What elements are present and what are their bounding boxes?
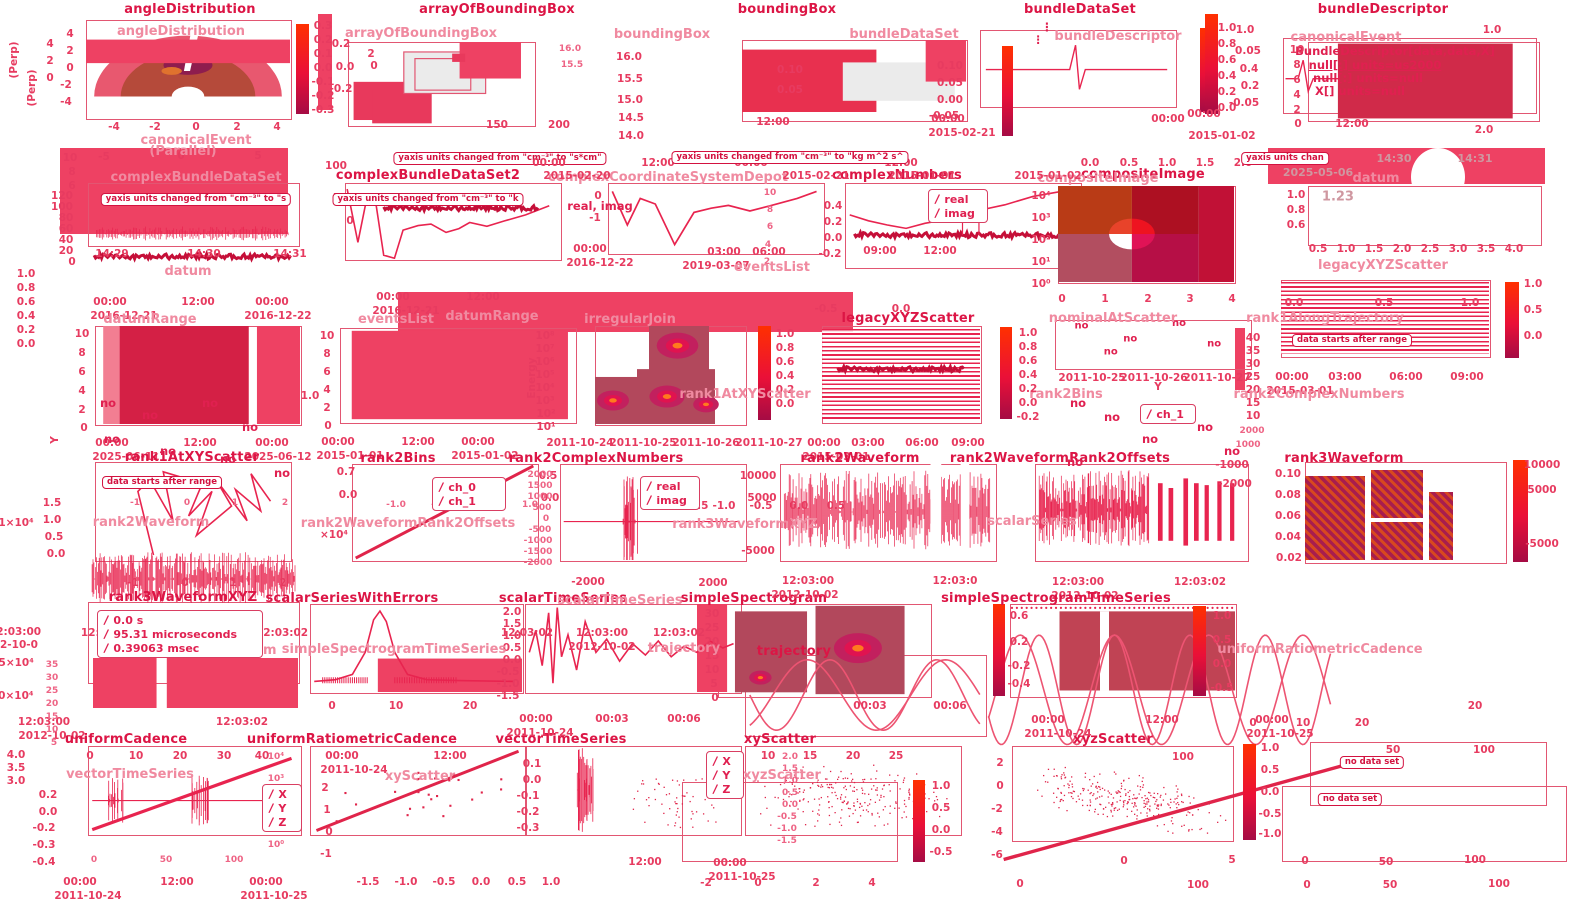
uniformRatiometricCadence-tick: 0.0: [523, 774, 542, 786]
uniformRatiometricCadence-tick: 00:00: [325, 750, 358, 762]
stray-label: no: [220, 452, 236, 466]
uniformRatiometricCadence-title: uniformRatiometricCadence: [247, 732, 457, 747]
datumRange-tick: 6: [78, 366, 85, 378]
stray-label: 16.0: [559, 44, 581, 54]
xyzScatter-colorbar-tick: 0.0: [1261, 786, 1280, 798]
stray-label: (Parallel): [149, 144, 216, 159]
complexNumbers-tick: 0.2: [824, 216, 843, 228]
legacyXYZScatter-tick: 06:00: [905, 437, 938, 449]
bundleDescriptor-tick: -0.05: [1229, 97, 1259, 109]
trajectory-title: trajectory: [757, 644, 831, 659]
uniformCadence-tick: 10⁰: [268, 840, 284, 850]
legend-item-label: Y: [722, 769, 730, 782]
empty-panel-2-tick: 100: [1488, 878, 1510, 890]
stray-label: no: [160, 444, 176, 458]
xyScatter-tick: -1.5: [777, 836, 797, 846]
irregularJoin-tick: 10⁴: [535, 382, 554, 394]
stray-colorbar: [1193, 606, 1206, 696]
complexBundleDataSet-tick: 0.2: [17, 324, 36, 336]
irregularJoin-colorbar-tick: 0.6: [776, 356, 795, 368]
irregularJoin-tick: 10³: [535, 395, 554, 407]
stray-label: 2000: [527, 470, 552, 480]
complexCoordinateSystemDepot-tick: 00:00: [573, 243, 606, 255]
legend-line-swatch-icon: ∕: [268, 801, 274, 815]
stray-label: (Perp): [26, 69, 38, 106]
compositeImage-tick: 4: [1228, 293, 1235, 305]
rank1AtXYScatter-tick: -1: [130, 498, 140, 508]
stray-label: 2015-02-21: [782, 170, 849, 182]
boundingBox-tick: 15.5: [617, 73, 643, 85]
rank1AlongTrajectory-colorbar-tick: 0.5: [1524, 304, 1543, 316]
scalarTimeSeries-tick: -1.5: [497, 690, 520, 702]
compositeImage-tick: 0.5: [1120, 157, 1139, 169]
vectorTimeSeries-tick: 2: [812, 877, 819, 889]
trajectory-inner-title: trajectory: [648, 641, 720, 656]
complexBundleDataSet-inner-title: complexBundleDataSet: [110, 170, 281, 185]
complexCoordinateSystemDepot-tick: 2016-12-22: [566, 257, 633, 269]
boundingBox-tick: 14.0: [618, 130, 644, 142]
compositeImage-tick: 2: [1144, 293, 1151, 305]
stray-colorbar-tick: 0.5: [932, 802, 951, 814]
rank3Waveform-tick: 0.02: [1276, 552, 1302, 564]
stray-label: 4: [765, 240, 771, 250]
rank1AtXYScatter-title: rank1AtXYScatter: [125, 450, 260, 465]
xyScatter-tick: 0.0: [782, 800, 798, 810]
empty-panel-2-annotation: no data set: [1318, 793, 1382, 806]
simpleSpectrogramTimeSeries-colorbar-tick: 0.6: [1010, 610, 1029, 622]
complexBundleDataSet-tick: 14:30: [187, 248, 220, 260]
legend-line-swatch-icon: ∕: [103, 613, 109, 627]
angleDistribution-tick: 2: [233, 121, 240, 133]
stray-label: 2: [46, 55, 53, 67]
datum-tick: 3.0: [1449, 243, 1468, 255]
complexNumbers-tick: 12:00: [923, 245, 956, 257]
uniformRatiometricCadence-tick: 2011-10-24: [320, 764, 387, 776]
uniformCadence-tick: 10⁴: [268, 752, 284, 762]
rank3Waveform-hatch: [1305, 476, 1365, 560]
simpleSpectrogramTimeSeries-tick: 12:00: [1145, 714, 1178, 726]
stray-label: 10: [46, 725, 59, 735]
irregularJoin-colorbar-tick: 0.4: [776, 370, 795, 382]
bundleDescriptor-tick: X[] units=null: [1315, 84, 1405, 98]
angleDistribution-tick: 0: [66, 62, 73, 74]
bundleDataSet-tick: 0.05: [937, 77, 963, 89]
stray-label: no: [242, 420, 258, 434]
uniformRatiometricCadence-tick: 1: [323, 804, 330, 816]
xyzScatter-colorbar-tick: 0.5: [1261, 764, 1280, 776]
scalarTimeSeries-tick: 2.0: [503, 606, 522, 618]
bundleDataSet-tick: 0.10: [937, 60, 963, 72]
irregularJoin-axes: [595, 326, 747, 426]
stray-label: 2000: [698, 577, 727, 589]
rank2Bins-title: rank2Bins: [360, 451, 435, 466]
irregularJoin-tick: 10⁸: [535, 330, 554, 342]
legend-item-label: 0.0 s: [113, 614, 143, 627]
nominalAtScatter-tick: 25: [1246, 371, 1261, 383]
rank2Waveform-title: rank2Waveform: [800, 451, 919, 466]
irregularJoin-tick: Energy: [526, 357, 538, 398]
stray-colorbar-tick: 1.0: [1213, 610, 1232, 622]
bundleDescriptor-tick: 0.2: [1241, 80, 1260, 92]
legend-line-swatch-icon: ∕: [646, 479, 652, 493]
legend-item-label: X: [278, 788, 286, 801]
stray-label: 4: [46, 38, 53, 50]
boundingBox-inner-title: boundingBox: [614, 27, 710, 42]
legend-line-swatch-icon: ∕: [438, 494, 444, 508]
uniformCadence-tick: 4.0: [7, 749, 26, 761]
arrayOfBoundingBox-tick: 0: [370, 60, 377, 72]
canonicalEvent-tick: 6: [1293, 74, 1300, 86]
stray-label: eventsList: [734, 260, 810, 275]
uniformCadence-tick: 20: [173, 750, 188, 762]
stray-label: 2011-10-24: [546, 437, 613, 449]
rank1AlongTrajectory-colorbar-tick: 1.0: [1524, 278, 1543, 290]
stray-colorbar-tick: 0.0: [1213, 658, 1232, 670]
vectorTimeSeries-tick: 4: [868, 877, 875, 889]
datum-tick: 0.6: [1287, 219, 1306, 231]
boundingBox-title: boundingBox: [738, 2, 837, 17]
stray-colorbar-tick: -0.5: [930, 846, 953, 858]
nominalAtScatter-tick: 2000: [1239, 426, 1264, 436]
uniformCadence-tick: 50: [160, 855, 173, 865]
angleDistribution-colorbar: [296, 24, 309, 114]
vectorTimeSeries-tick: 2011-10-25: [708, 871, 775, 883]
legacyXYZScatter-tick: 09:00: [951, 437, 984, 449]
rank1AlongTrajectory-tick: 0.0: [1285, 297, 1304, 309]
simpleSpectrogramTimeSeries-tick: 2011-10-25: [1246, 728, 1313, 740]
legacyXYZScatter-stripes: [822, 329, 980, 419]
stray-colorbar: [1205, 14, 1218, 114]
simpleSpectrogram-tick: 25: [705, 622, 720, 634]
xyScatter-title: xyScatter: [744, 732, 816, 747]
boundingBox-tick: 14.5: [618, 112, 644, 124]
stray-label: -2000: [571, 576, 605, 588]
complexNumbers-tick: 0.0: [824, 232, 843, 244]
vectorTimeSeries-tick: -2: [700, 877, 712, 889]
uniformRatiometricCadence-tick: 2: [321, 782, 328, 794]
irregularJoin-colorbar-tick: 1.0: [776, 328, 795, 340]
eventsList-tick: 12:00: [401, 436, 434, 448]
eventsList-tick: 10: [320, 330, 335, 342]
uniformRatiometricCadence-tick: -1.0: [395, 876, 418, 888]
stray-colorbar: [913, 780, 925, 862]
nominalAtScatter-tick: 40: [1246, 332, 1261, 344]
legend-item-label: 95.31 microseconds: [113, 628, 237, 641]
complexBundleDataSet-tick: 12:00: [181, 296, 214, 308]
canonicalEvent-tick: 1.0: [1483, 24, 1502, 36]
bundleDataSet-colorbar-tick: 1.0: [1218, 22, 1237, 34]
uniformCadence-tick: 0: [86, 750, 93, 762]
xyScatter-tick: 0.5: [782, 788, 798, 798]
uniformCadence-legend: ∕X∕Y∕Z: [262, 784, 302, 832]
simpleSpectrogram-tick: 30: [705, 608, 720, 620]
stray-label: 2012-10-02: [771, 589, 838, 601]
stray-label: -0.5: [815, 303, 838, 315]
compositeImage-tick: 10³: [1031, 212, 1050, 224]
datumRange-tick: 2: [78, 404, 85, 416]
rank2WaveformRank2Offsets-tick: 12:03:02: [1174, 576, 1226, 588]
canonicalEvent-inner-title: canonicalEvent: [1291, 30, 1402, 45]
uniformCadence-tick: 2011-10-24: [54, 890, 121, 902]
xyzScatter-tick: 0: [1016, 878, 1023, 890]
uniformRatiometricCadence-tick: -0.1: [517, 790, 540, 802]
rank1AlongTrajectory-tick: 06:00: [1389, 371, 1422, 383]
stray-label: 2015-01-02: [1014, 170, 1081, 182]
legend-item-label: imag: [656, 494, 687, 507]
rank2Waveform-axes: [780, 464, 997, 562]
complexNumbers-tick: 09:00: [863, 245, 896, 257]
simpleSpectrogram-b-tick: 12:03:02: [216, 716, 268, 728]
rank2WaveformRank2Offsets-axes: [1035, 464, 1249, 562]
datumRange-tick: 1.0: [301, 390, 320, 402]
complexNumbers-tick: 0.4: [824, 200, 843, 212]
trajectory-axes: [745, 655, 987, 737]
stray-label: 00:03: [853, 700, 886, 712]
rank1AtXYScatter-tick: 0.0: [47, 548, 66, 560]
canonicalEvent-tick: 8: [1293, 59, 1300, 71]
legend-line-swatch-icon: ∕: [103, 641, 109, 655]
xyzScatter-colorbar-tick: -1.0: [1259, 828, 1282, 840]
stray-label: ⋮: [1041, 20, 1053, 34]
stray-label: 1×10⁴: [0, 517, 34, 529]
irregularJoin-colorbar: [758, 326, 771, 420]
xyzScatter-tick: 5: [1228, 854, 1235, 866]
uniformCadence-tick: 3.0: [7, 775, 26, 787]
nominalAtScatter-tick: 2011-10-27: [1183, 372, 1250, 384]
uniformRatiometricCadence-tick: 0.5: [508, 876, 527, 888]
uniformCadence-tick: 30: [217, 750, 232, 762]
simpleSpectrogramTimeSeries-colorbar-tick: -0.2: [1008, 660, 1031, 672]
angleDistribution-tick: 2: [66, 45, 73, 57]
rank2Bins-legend: ∕ch_0∕ch_1: [432, 477, 506, 511]
bundleDescriptor-title: bundleDescriptor: [1318, 2, 1448, 17]
stray-label: 2011-10-25: [609, 437, 676, 449]
stray-label: -2000: [524, 558, 553, 568]
stray-label: simpleSpectrogramTimeSeries: [282, 642, 506, 657]
simpleSpectrogramTimeSeries-tick: 00:00: [1255, 714, 1288, 726]
bundleDescriptor-tick: 1.0: [1236, 24, 1255, 36]
stray-label: -5×10⁴: [0, 657, 34, 669]
legend-item-label: 0.39063 msec: [113, 642, 199, 655]
datum-tick: 0.5: [1309, 243, 1328, 255]
uniformCadence-tick: 10³: [268, 774, 284, 784]
stray-label: 5: [254, 150, 261, 162]
datumRange-axes: [95, 326, 302, 426]
xyScatter-tick: 1.5: [782, 764, 798, 774]
angleDistribution-colorbar-tick: -0.3: [312, 104, 335, 116]
stray-label: 35: [46, 660, 59, 670]
complexBundleDataSet-tick: 2016-12-22: [244, 310, 311, 322]
stray-colorbar-tick: 0.2: [1019, 383, 1038, 395]
stray-colorbar-tick: -0.2: [1017, 411, 1040, 423]
legend-line-swatch-icon: ∕: [934, 206, 940, 220]
uniformCadence-tick: 00:00: [63, 876, 96, 888]
stray-label: -0.5: [750, 500, 773, 512]
angleDistribution-title: angleDistribution: [124, 2, 256, 17]
empty-panel-2-tick: 50: [1383, 879, 1398, 891]
bundleDescriptor-tick: 2015-01-02: [1188, 130, 1255, 142]
rank1AlongTrajectory-colorbar-tick: 0.0: [1524, 330, 1543, 342]
scalarTimeSeries-tick: -1.0: [497, 678, 520, 690]
rank3Waveform-tick: 0.08: [1275, 489, 1301, 501]
scalarSeriesWithErrors-tick: 20: [463, 700, 478, 712]
datum-tick: 3.5: [1477, 243, 1496, 255]
stray-label: uniformRatiometricCadence: [1217, 642, 1422, 657]
datumRange-tick: 10: [75, 328, 90, 340]
stray-label: 00:00: [519, 713, 552, 725]
datum-tick: 4.0: [1505, 243, 1524, 255]
boundingBox-tick: 15.0: [617, 94, 643, 106]
legend-item-label: Z: [722, 783, 730, 796]
stray-label: 0: [543, 514, 549, 524]
legend-item-label: real: [944, 193, 968, 206]
stray-label: -500: [529, 525, 552, 535]
angleDistribution-inner-title: angleDistribution: [117, 24, 245, 39]
nominalAtScatter-inner-title: nominalAtScatter: [1049, 311, 1177, 326]
complexBundleDataSet2-tick: 0: [346, 215, 353, 227]
bundleDescriptor-tick: null[:] units=us2000: [1309, 58, 1442, 72]
rank1AtXYScatter-tick: 0: [181, 577, 188, 589]
complexCoordinateSystemDepot-tick: 03:00: [707, 246, 740, 258]
simpleSpectrogram-b-axes: [93, 658, 298, 708]
stray-label: 2011-10-26: [672, 437, 739, 449]
stray-label: no: [274, 466, 290, 480]
rank2WaveformRank2Offsets-tick: 12:03:00: [1052, 576, 1104, 588]
datum-tick: 1.0: [1287, 189, 1306, 201]
rank3Waveform-tick: 0.10: [1275, 468, 1301, 480]
uniformRatiometricCadence-tick: 12:00: [433, 750, 466, 762]
empty-panel-1-annotation: no data set: [1340, 756, 1404, 769]
rank2Waveform-tick: 10000: [740, 470, 777, 482]
legend-line-swatch-icon: ∕: [268, 787, 274, 801]
complexNumbers-legend: ∕real∕imag: [928, 189, 988, 223]
datum-tick: 1.5: [1365, 243, 1384, 255]
bundleDescriptor-inner-title: bundleDescriptor: [1054, 29, 1181, 44]
scalarSeriesWithErrors-tick: 10: [389, 700, 404, 712]
bundleDataSet-tick: 2015-02-21: [928, 127, 995, 139]
scalarSeriesWithErrors-title: scalarSeriesWithErrors: [266, 591, 439, 606]
legend-item-label: ch_1: [448, 495, 476, 508]
canonicalEvent-tick: 2: [1293, 104, 1300, 116]
stray-label: 6: [767, 222, 773, 232]
rank2Waveform-tick: -5000: [741, 545, 775, 557]
xyScatter-tick: 10: [761, 750, 776, 762]
datum-tick: 2.5: [1421, 243, 1440, 255]
legend-line-swatch-icon: ∕: [1146, 407, 1152, 421]
canonicalEvent-tick: 0: [1294, 118, 1301, 130]
stray-label: no: [1197, 420, 1213, 434]
rank3Waveform-tick: 0.04: [1275, 531, 1301, 543]
xyScatter-tick: -0.5: [777, 812, 797, 822]
rank1AtXYScatter-tick: 0: [184, 498, 190, 508]
datum-tick: 1.0: [1337, 243, 1356, 255]
rank2Bins-tick: 0.0: [339, 489, 358, 501]
stray-label: 500: [533, 503, 552, 513]
uniformRatiometricCadence-tick: 0: [325, 826, 332, 838]
vectorTimeSeries-legend: ∕X∕Y∕Z: [706, 751, 744, 799]
stray-label: -1000: [524, 536, 553, 546]
stray-label: -1.0: [713, 500, 736, 512]
uniformCadence-tick: 0.2: [39, 789, 58, 801]
arrayOfBoundingBox-inner-title: arrayOfBoundingBox: [345, 26, 497, 41]
rank1AtXYScatter-tick: 2: [282, 498, 288, 508]
arrayOfBoundingBox-tick: 0.2: [332, 38, 351, 50]
stray-label: rank3WaveformXYZ: [672, 517, 817, 532]
empty-panel-1-tick: 100: [1473, 744, 1495, 756]
bundleDataSet-colorbar-tick: 0.4: [1218, 70, 1237, 82]
rank2WaveformRank2Offsets-title: rank2WaveformRank2Offsets: [950, 451, 1170, 466]
stray-colorbar-tick: 0.0: [1019, 397, 1038, 409]
stray-label: Y: [49, 436, 61, 444]
uniformCadence-title: uniformCadence: [65, 732, 188, 747]
stray-label: 30: [46, 673, 59, 683]
irregularJoin-tick: 10⁵: [535, 369, 554, 381]
rank3Waveform-hatch: [1371, 522, 1423, 560]
uniformCadence-tick: 0.0: [39, 806, 58, 818]
stray-label: datumRange: [445, 309, 538, 324]
stray-label: 00:06: [933, 700, 966, 712]
arrayOfBoundingBox-tick: -0.2: [330, 83, 353, 95]
complexBundleDataSet-tick: 0: [68, 256, 75, 268]
bundleDescriptor-tick: 00:00: [1187, 108, 1220, 120]
rank1AlongTrajectory-tick: 09:00: [1450, 371, 1483, 383]
bundleDataSet-colorbar-tick: 0.8: [1218, 38, 1237, 50]
stray-colorbar: [1000, 327, 1012, 419]
stray-label: 20: [46, 699, 59, 709]
stray-colorbar-tick: 0.8: [1019, 341, 1038, 353]
stray-label: 2012-10-02: [568, 641, 635, 653]
stray-label: rank2Waveform: [93, 515, 210, 530]
uniformRatiometricCadence-tick: 1.0: [542, 876, 561, 888]
rank1AtXYScatter-tick: 1.0: [43, 514, 62, 526]
stray-label: 15: [46, 712, 59, 722]
rank1AtXYScatter-annotation: data starts after range: [102, 476, 222, 489]
compositeImage-tick: 0.0: [1081, 157, 1100, 169]
legacyXYZScatter-tick: 00:00: [807, 437, 840, 449]
boundingBox-tick: 0.10: [777, 64, 803, 76]
legend-line-swatch-icon: ∕: [268, 815, 274, 829]
datumRange-tick: 0: [80, 422, 87, 434]
stray-label: 1500: [527, 481, 552, 491]
rank1AlongTrajectory-tick: 00:00: [1275, 371, 1308, 383]
stray-colorbar-tick: 1.0: [932, 780, 951, 792]
rank1AtXYScatter-tick: 1: [232, 498, 238, 508]
uniformRatiometricCadence-tick: -0.2: [517, 806, 540, 818]
uniformCadence-tick: -0.2: [33, 822, 56, 834]
eventsList-tick: 6: [323, 366, 330, 378]
compositeImage-tick: 10²: [1031, 234, 1050, 246]
stray-label: 2015-02-20: [543, 170, 610, 182]
complexBundleDataSet-annotation: yaxis units changed from "cm⁻³" to "s: [101, 193, 291, 206]
stray-label: scalarSeries: [987, 514, 1076, 529]
xyScatter-tick: 1.0: [782, 776, 798, 786]
eventsList-inner-title: eventsList: [358, 312, 434, 327]
bundleDescriptor-tick: 0.4: [1240, 63, 1259, 75]
legend-item-label: ch_1: [1156, 408, 1184, 421]
angleDistribution-tick: 4: [273, 121, 280, 133]
legend-line-swatch-icon: ∕: [712, 768, 718, 782]
stray-label: (Perp): [8, 41, 20, 78]
legend-item-label: X: [722, 755, 730, 768]
uniformRatiometricCadence-tick: -0.5: [433, 876, 456, 888]
angleDistribution-colorbar-tick: 0.2: [314, 34, 333, 46]
datumRange-tick: 4: [78, 385, 85, 397]
uniformCadence-inner-title: vectorTimeSeries: [66, 767, 194, 782]
stray-label: 0.0: [790, 500, 809, 512]
stray-label: 00:00: [532, 157, 565, 169]
complexBundleDataSet2-tick: 100: [325, 160, 347, 172]
uniformCadence-tick: -0.4: [33, 856, 56, 868]
